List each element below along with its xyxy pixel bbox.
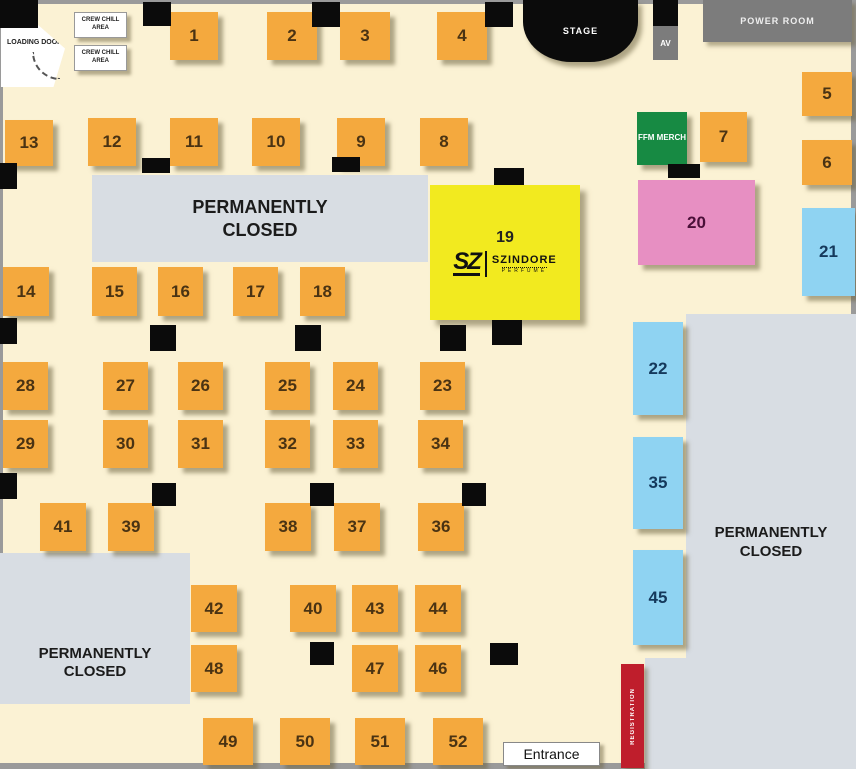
booth-number: 1 xyxy=(189,26,198,46)
booth-33: 33 xyxy=(333,420,378,468)
pillar xyxy=(143,2,171,26)
booth-6: 6 xyxy=(802,140,852,185)
stage-label: STAGE xyxy=(563,26,598,36)
booth-number: 49 xyxy=(219,732,238,752)
booth-number: 6 xyxy=(822,153,831,173)
booth-7: 7 xyxy=(700,112,747,162)
closed-area-label: PERMANENTLY CLOSED xyxy=(160,196,360,241)
booth-number: 44 xyxy=(429,599,448,619)
pillar xyxy=(492,320,522,345)
registration-label: REGISTRATION xyxy=(630,688,636,745)
crew-chill-label: CREW CHILL AREA xyxy=(75,50,126,66)
booth-number: 50 xyxy=(296,732,315,752)
booth-5: 5 xyxy=(802,72,852,116)
venue-floor-plan: PERMANENTLY CLOSED PERMANENTLY CLOSED PE… xyxy=(0,0,856,769)
av-pillar xyxy=(653,0,678,26)
booth-40: 40 xyxy=(290,585,336,632)
booth-number: 3 xyxy=(360,26,369,46)
pillar xyxy=(150,325,176,351)
booth-2: 2 xyxy=(267,12,317,60)
booth-number: 10 xyxy=(267,132,286,152)
booth-number: 16 xyxy=(171,282,190,302)
booth-number: 11 xyxy=(185,132,203,152)
booth-46: 46 xyxy=(415,645,461,692)
loading-door-label: LOADING DOOR xyxy=(7,39,62,46)
booth-15: 15 xyxy=(92,267,137,316)
booth-52: 52 xyxy=(433,718,483,765)
booth-49: 49 xyxy=(203,718,253,765)
szindore-logo: SZ SZINDORE PERFUME xyxy=(453,251,557,277)
booth-35: 35 xyxy=(633,437,683,529)
av-label: AV xyxy=(653,26,678,60)
entrance: Entrance xyxy=(503,742,600,766)
booth-number: 21 xyxy=(819,242,838,262)
pillar xyxy=(0,0,38,28)
booth-43: 43 xyxy=(352,585,398,632)
booth-18: 18 xyxy=(300,267,345,316)
booth-1: 1 xyxy=(170,12,218,60)
registration-desk: REGISTRATION xyxy=(621,664,644,768)
entrance-label: Entrance xyxy=(523,746,579,762)
booth-number: 51 xyxy=(371,732,390,752)
booth-number: 30 xyxy=(116,434,135,454)
booth-number: 34 xyxy=(431,434,450,454)
booth-26: 26 xyxy=(178,362,223,410)
booth-number: 33 xyxy=(346,434,365,454)
pillar xyxy=(494,168,524,185)
booth-number: 2 xyxy=(287,26,296,46)
booth-32: 32 xyxy=(265,420,310,468)
booth-10: 10 xyxy=(252,118,300,166)
booth-13: 13 xyxy=(5,120,53,166)
booth-44: 44 xyxy=(415,585,461,632)
booth-21: 21 xyxy=(802,208,855,296)
pillar xyxy=(462,483,486,506)
booth-number: 42 xyxy=(205,599,224,619)
booth-20: 20 xyxy=(638,180,755,265)
booth-number: 13 xyxy=(20,133,39,153)
booth-number: 18 xyxy=(313,282,332,302)
booth-19-szindore: 19 SZ SZINDORE PERFUME xyxy=(430,185,580,320)
booth-number: 46 xyxy=(429,659,448,679)
booth-23: 23 xyxy=(420,362,465,410)
booth-number: 31 xyxy=(191,434,210,454)
ffm-merch-label: FFM MERCH xyxy=(638,133,686,143)
booth-27: 27 xyxy=(103,362,148,410)
crew-chill-label: CREW CHILL AREA xyxy=(75,17,126,33)
booth-36: 36 xyxy=(418,503,464,551)
brand-name: SZINDORE xyxy=(492,254,557,266)
booth-number: 32 xyxy=(278,434,297,454)
booth-number: 24 xyxy=(346,376,365,396)
booth-number: 47 xyxy=(366,659,385,679)
pillar xyxy=(0,473,17,499)
booth-number: 29 xyxy=(16,434,35,454)
booth-number: 26 xyxy=(191,376,210,396)
booth-28: 28 xyxy=(3,362,48,410)
booth-number: 22 xyxy=(649,359,668,379)
stage: STAGE xyxy=(523,0,638,62)
booth-42: 42 xyxy=(191,585,237,632)
booth-number: 28 xyxy=(16,376,35,396)
booth-45: 45 xyxy=(633,550,683,645)
booth-number: 52 xyxy=(449,732,468,752)
power-room: POWER ROOM xyxy=(703,0,852,42)
pillar xyxy=(668,164,700,178)
booth-34: 34 xyxy=(418,420,463,468)
pillar xyxy=(332,157,360,172)
pillar xyxy=(0,163,17,189)
booth-39: 39 xyxy=(108,503,154,551)
closed-area-label: PERMANENTLY CLOSED xyxy=(20,645,170,683)
booth-number: 48 xyxy=(205,659,224,679)
booth-14: 14 xyxy=(3,267,49,316)
booth-48: 48 xyxy=(191,645,237,692)
closed-area-bottom-left: PERMANENTLY CLOSED xyxy=(0,553,190,704)
pillar xyxy=(490,643,518,665)
booth-number: 35 xyxy=(649,473,668,493)
booth-number: 12 xyxy=(103,132,122,152)
closed-area-right: PERMANENTLY CLOSED xyxy=(686,314,856,769)
closed-area-right-extension xyxy=(645,658,690,769)
ffm-merch-booth: FFM MERCH xyxy=(637,112,687,165)
booth-16: 16 xyxy=(158,267,203,316)
crew-chill-area-2: CREW CHILL AREA xyxy=(74,45,127,71)
booth-3: 3 xyxy=(340,12,390,60)
booth-29: 29 xyxy=(3,420,48,468)
booth-38: 38 xyxy=(265,503,311,551)
pillar xyxy=(485,2,513,27)
pillar xyxy=(0,318,17,344)
power-room-label: POWER ROOM xyxy=(740,16,815,26)
booth-8: 8 xyxy=(420,118,468,166)
crew-chill-area-1: CREW CHILL AREA xyxy=(74,12,127,38)
booth-25: 25 xyxy=(265,362,310,410)
booth-37: 37 xyxy=(334,503,380,551)
pillar xyxy=(312,2,340,27)
closed-area-label: PERMANENTLY CLOSED xyxy=(691,524,851,562)
av-booth: AV xyxy=(653,0,678,60)
booth-number: 45 xyxy=(649,588,668,608)
pillar xyxy=(142,158,170,173)
pillar xyxy=(152,483,176,506)
booth-number: 25 xyxy=(278,376,297,396)
booth-number: 14 xyxy=(17,282,36,302)
booth-41: 41 xyxy=(40,503,86,551)
booth-number: 15 xyxy=(105,282,124,302)
brand-subtitle: PERFUME xyxy=(502,267,547,274)
booth-4: 4 xyxy=(437,12,487,60)
booth-22: 22 xyxy=(633,322,683,415)
pillar xyxy=(440,325,466,351)
booth-number: 17 xyxy=(246,282,265,302)
booth-12: 12 xyxy=(88,118,136,166)
pillar xyxy=(310,642,334,665)
booth-19-number: 19 xyxy=(496,229,514,247)
sz-logo-icon: SZ xyxy=(453,251,480,276)
booth-number: 36 xyxy=(432,517,451,537)
booth-number: 5 xyxy=(822,84,831,104)
booth-number: 43 xyxy=(366,599,385,619)
logo-divider xyxy=(485,251,487,277)
booth-24: 24 xyxy=(333,362,378,410)
booth-47: 47 xyxy=(352,645,398,692)
booth-number: 9 xyxy=(356,132,365,152)
booth-30: 30 xyxy=(103,420,148,468)
booth-11: 11 xyxy=(170,118,218,166)
booth-number: 41 xyxy=(54,517,73,537)
booth-17: 17 xyxy=(233,267,278,316)
booth-51: 51 xyxy=(355,718,405,765)
booth-number: 20 xyxy=(687,213,706,233)
pillar xyxy=(310,483,334,506)
booth-31: 31 xyxy=(178,420,223,468)
booth-number: 37 xyxy=(348,517,367,537)
booth-number: 39 xyxy=(122,517,141,537)
closed-area-top: PERMANENTLY CLOSED xyxy=(92,175,428,262)
booth-number: 27 xyxy=(116,376,135,396)
booth-number: 40 xyxy=(304,599,323,619)
booth-50: 50 xyxy=(280,718,330,765)
booth-number: 38 xyxy=(279,517,298,537)
booth-number: 23 xyxy=(433,376,452,396)
pillar xyxy=(295,325,321,351)
booth-number: 4 xyxy=(457,26,466,46)
booth-number: 8 xyxy=(439,132,448,152)
booth-number: 7 xyxy=(719,127,728,147)
